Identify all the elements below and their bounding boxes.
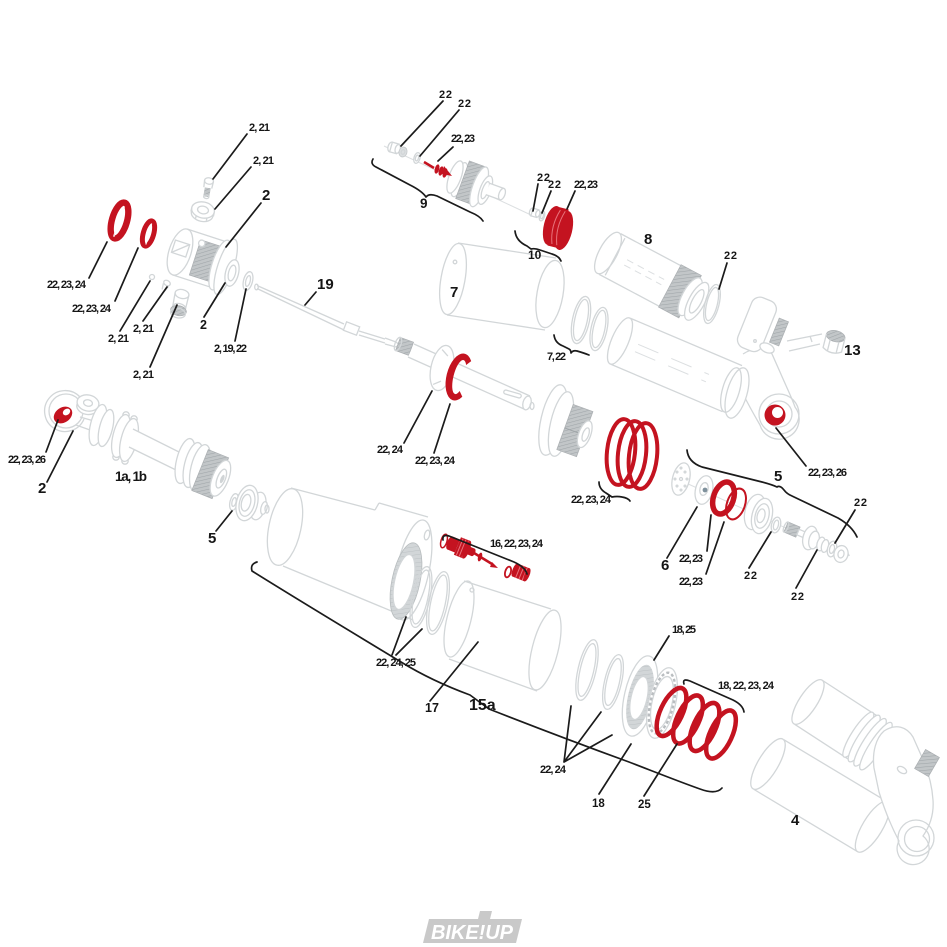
- svg-text:16, 22, 23, 24: 16, 22, 23, 24: [490, 538, 544, 550]
- svg-text:2: 2: [200, 318, 207, 332]
- svg-text:10: 10: [528, 248, 542, 262]
- svg-text:22, 24: 22, 24: [377, 444, 404, 456]
- svg-text:22, 23, 24: 22, 23, 24: [47, 279, 87, 291]
- svg-text:22, 23: 22, 23: [451, 133, 475, 145]
- svg-text:1a, 1b: 1a, 1b: [115, 469, 147, 484]
- svg-text:19: 19: [317, 276, 334, 293]
- svg-text:2, 21: 2, 21: [133, 323, 154, 335]
- svg-text:5: 5: [774, 468, 782, 485]
- svg-text:7: 7: [450, 284, 458, 301]
- svg-text:13: 13: [844, 342, 861, 359]
- svg-text:22, 23, 24: 22, 23, 24: [415, 455, 456, 467]
- svg-text:22: 22: [458, 98, 471, 110]
- svg-text:22: 22: [744, 570, 757, 582]
- svg-text:22, 23, 26: 22, 23, 26: [8, 454, 46, 466]
- svg-text:18, 22, 23, 24: 18, 22, 23, 24: [718, 680, 775, 692]
- svg-text:22, 23, 24: 22, 23, 24: [72, 303, 112, 315]
- svg-text:5: 5: [208, 530, 216, 547]
- svg-text:22: 22: [548, 179, 561, 191]
- svg-text:18, 25: 18, 25: [672, 624, 696, 636]
- svg-text:22: 22: [724, 250, 737, 262]
- svg-text:22, 23, 26: 22, 23, 26: [808, 467, 847, 479]
- svg-text:15a: 15a: [469, 697, 496, 714]
- svg-text:2, 21: 2, 21: [108, 333, 129, 345]
- svg-text:2: 2: [38, 480, 46, 497]
- svg-text:6: 6: [661, 557, 669, 574]
- svg-text:22, 24: 22, 24: [540, 764, 567, 776]
- svg-text:22, 24, 25: 22, 24, 25: [376, 657, 416, 669]
- svg-text:BIKE!UP: BIKE!UP: [431, 922, 514, 944]
- svg-text:9: 9: [420, 196, 428, 211]
- svg-text:22, 23: 22, 23: [679, 553, 703, 565]
- svg-text:22, 23, 24: 22, 23, 24: [571, 494, 612, 506]
- svg-text:2: 2: [262, 187, 270, 204]
- svg-text:22: 22: [439, 89, 452, 101]
- svg-text:22: 22: [791, 591, 804, 603]
- svg-text:7, 22: 7, 22: [547, 351, 566, 363]
- svg-text:4: 4: [791, 812, 800, 829]
- svg-text:2, 19, 22: 2, 19, 22: [214, 343, 247, 355]
- svg-text:25: 25: [638, 799, 651, 811]
- svg-text:22, 23: 22, 23: [679, 576, 703, 588]
- svg-text:2, 21: 2, 21: [249, 122, 270, 134]
- svg-text:17: 17: [425, 701, 439, 715]
- svg-text:2, 21: 2, 21: [133, 369, 154, 381]
- svg-text:2, 21: 2, 21: [253, 155, 274, 167]
- svg-text:22, 23: 22, 23: [574, 179, 598, 191]
- svg-text:18: 18: [592, 798, 605, 810]
- svg-text:8: 8: [644, 231, 652, 248]
- svg-text:22: 22: [854, 497, 867, 509]
